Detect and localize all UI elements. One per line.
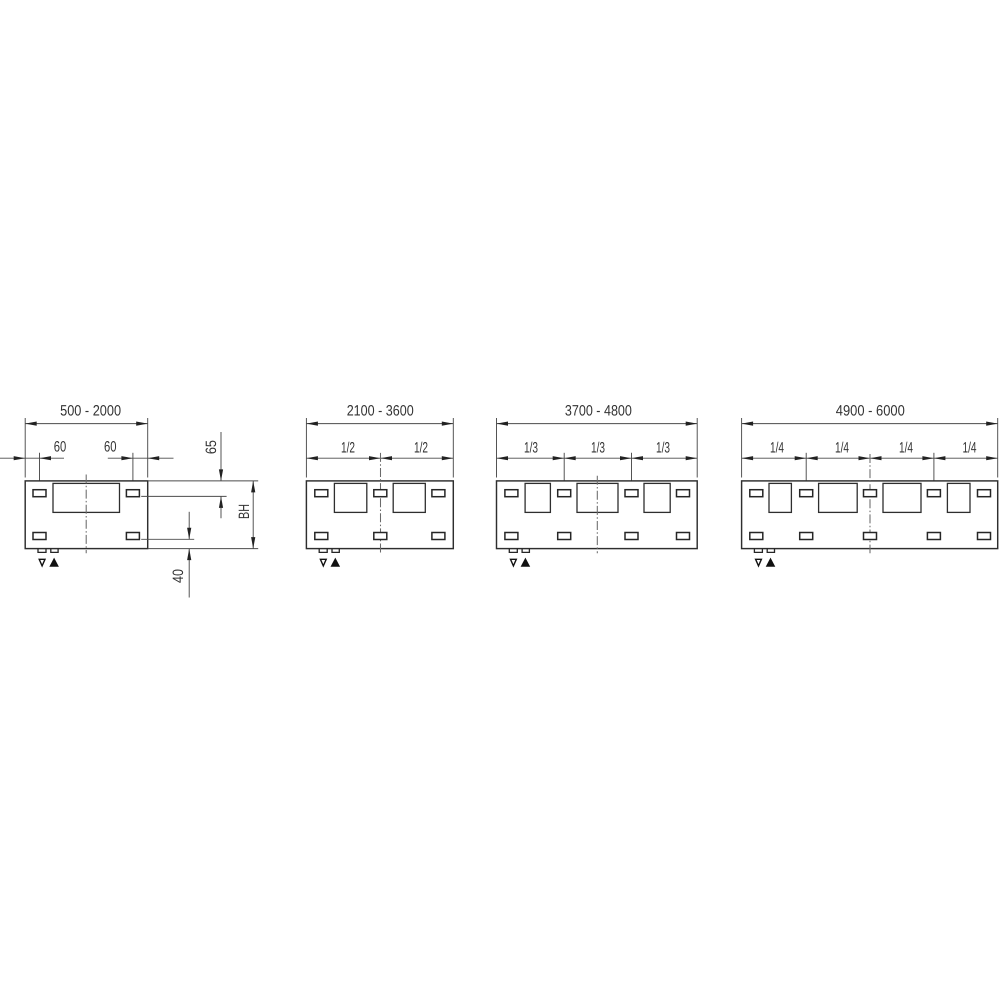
svg-text:1/4: 1/4 xyxy=(835,439,849,456)
svg-text:1/4: 1/4 xyxy=(770,439,784,456)
svg-text:1/3: 1/3 xyxy=(591,439,605,456)
svg-text:1/2: 1/2 xyxy=(341,439,355,456)
svg-text:1/2: 1/2 xyxy=(414,439,428,456)
svg-text:1/3: 1/3 xyxy=(656,439,670,456)
svg-text:1/4: 1/4 xyxy=(963,439,977,456)
svg-text:1/4: 1/4 xyxy=(899,439,913,456)
svg-text:4900 - 6000: 4900 - 6000 xyxy=(836,403,905,420)
svg-text:60: 60 xyxy=(54,438,67,455)
svg-text:40: 40 xyxy=(170,569,187,583)
svg-text:65: 65 xyxy=(203,440,220,454)
svg-text:60: 60 xyxy=(104,438,117,455)
svg-text:3700 - 4800: 3700 - 4800 xyxy=(565,403,632,420)
svg-text:500 - 2000: 500 - 2000 xyxy=(60,403,121,420)
svg-text:BH: BH xyxy=(236,504,253,519)
svg-text:2100 - 3600: 2100 - 3600 xyxy=(347,403,414,420)
svg-text:1/3: 1/3 xyxy=(524,439,538,456)
